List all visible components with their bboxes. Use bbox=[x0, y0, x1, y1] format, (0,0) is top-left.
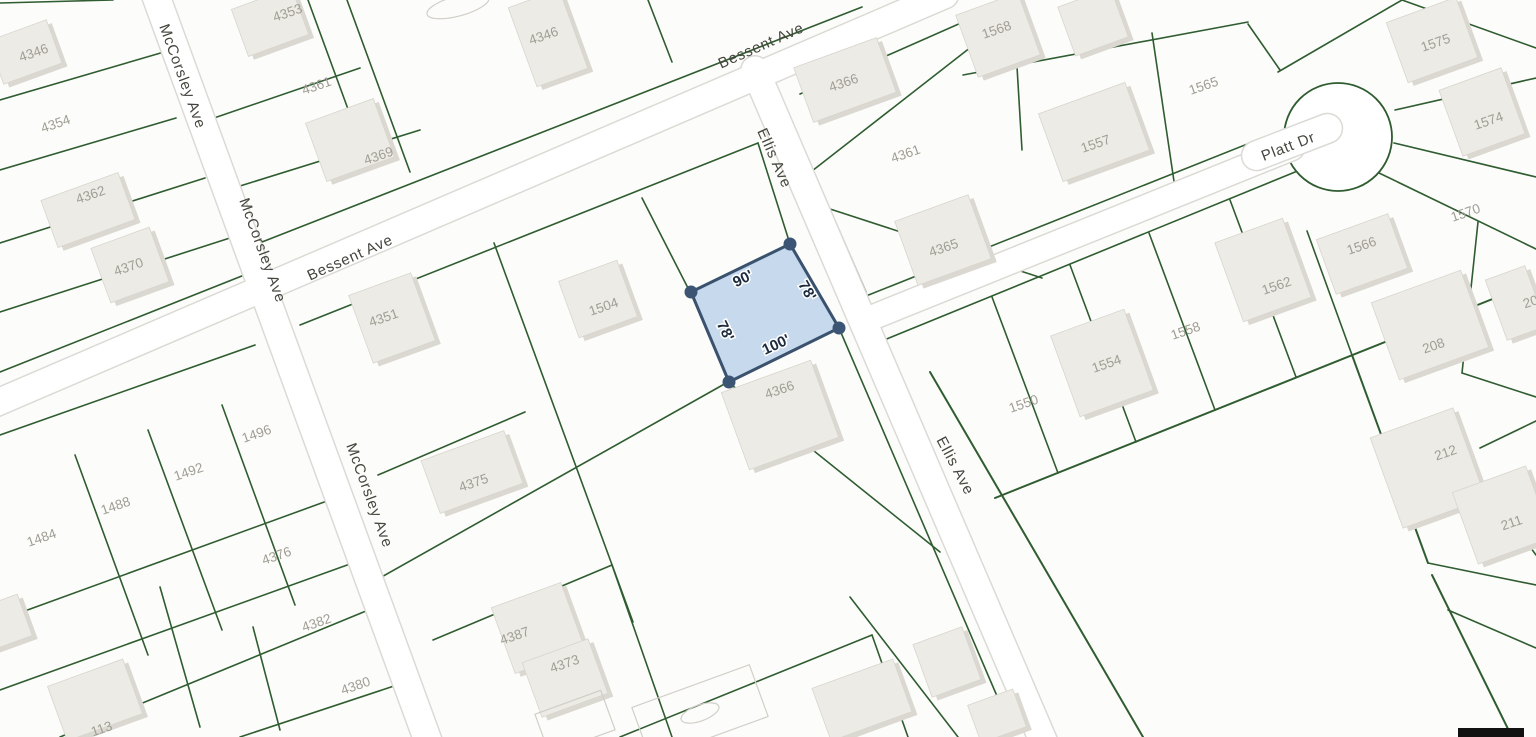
parcel-vertex-handle[interactable] bbox=[723, 376, 736, 389]
parcel-map-viewport[interactable]: 4346435443624370435343614369434643511504… bbox=[0, 0, 1536, 737]
parcel-vertex-handle[interactable] bbox=[685, 286, 698, 299]
parcel-vertex-handle[interactable] bbox=[833, 322, 846, 335]
parcel-map[interactable]: 4346435443624370435343614369434643511504… bbox=[0, 0, 1536, 737]
black-bar bbox=[1458, 728, 1524, 737]
parcel-vertex-handle[interactable] bbox=[784, 238, 797, 251]
